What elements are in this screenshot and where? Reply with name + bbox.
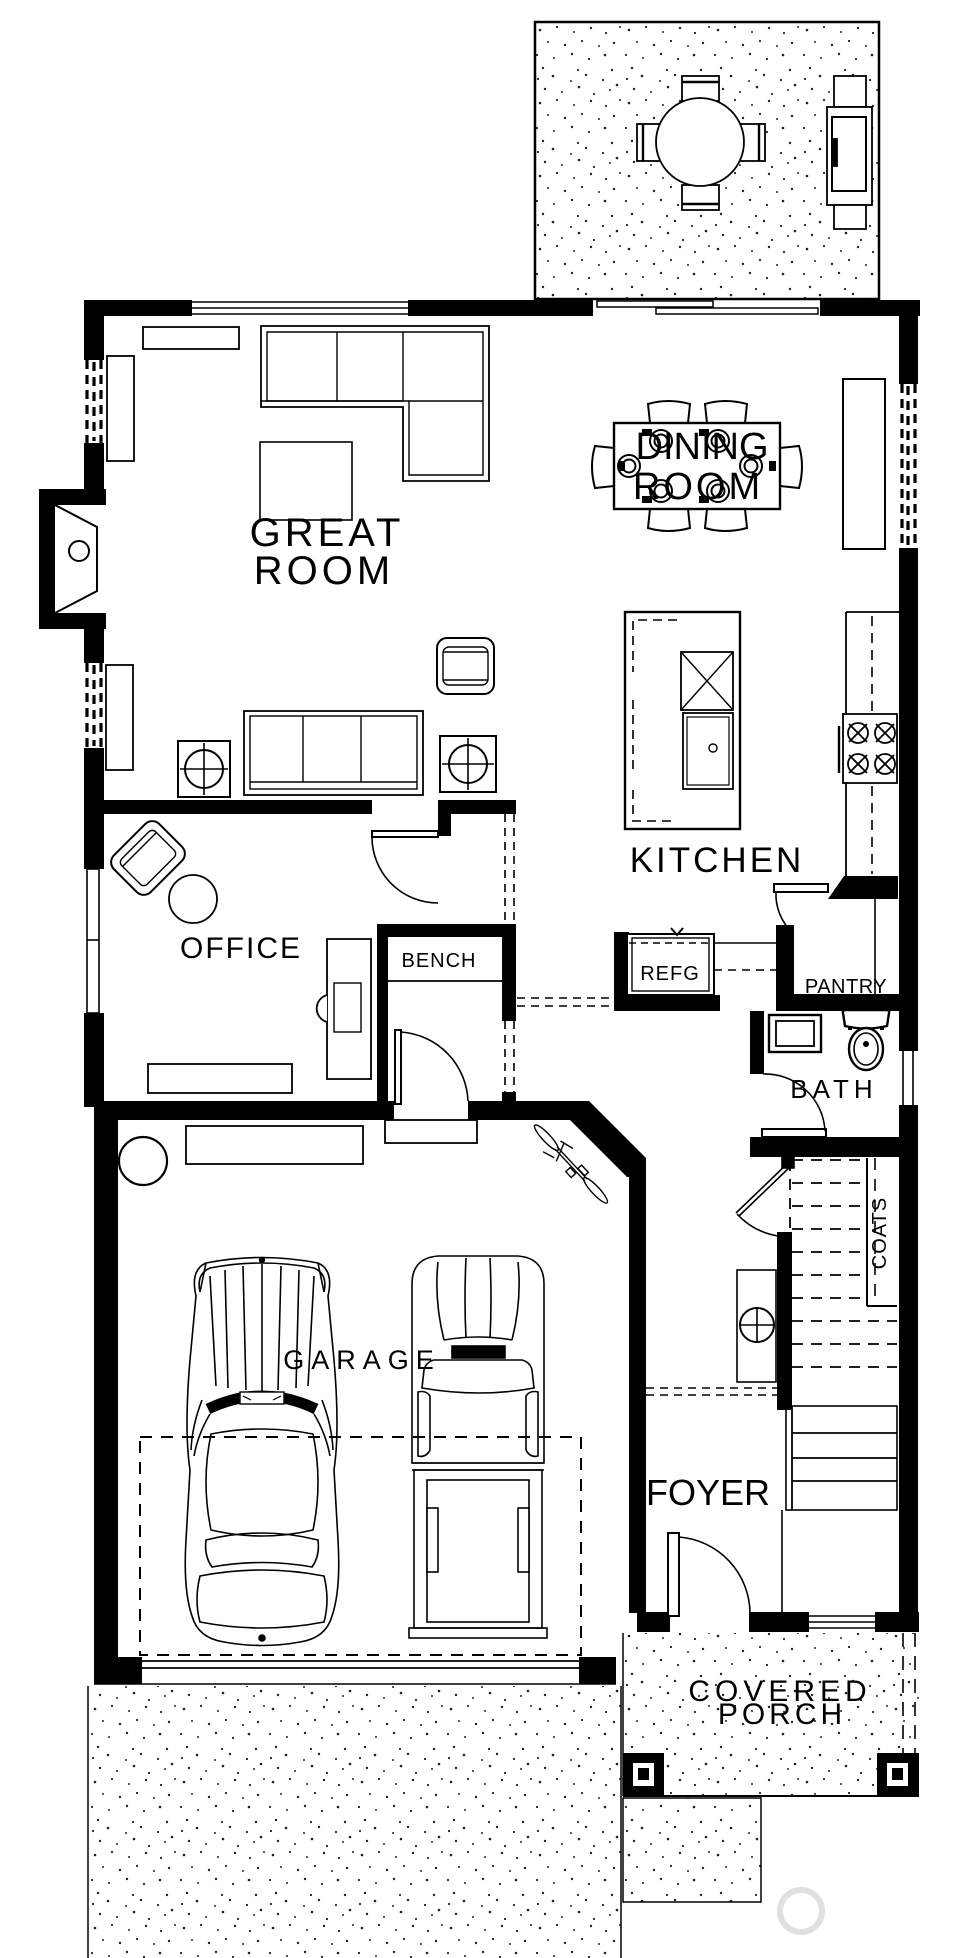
svg-text:PORCH: PORCH [718, 1698, 846, 1731]
svg-text:BATH: BATH [790, 1074, 877, 1104]
svg-text:KITCHEN: KITCHEN [630, 841, 805, 880]
svg-text:REFG: REFG [640, 963, 700, 985]
svg-text:GARAGE: GARAGE [283, 1345, 441, 1375]
svg-text:ROOM: ROOM [254, 549, 394, 593]
svg-text:ROOM: ROOM [633, 466, 763, 508]
svg-text:DINING: DINING [636, 426, 769, 468]
svg-text:FOYER: FOYER [646, 1472, 770, 1513]
svg-text:PANTRY: PANTRY [805, 976, 887, 998]
svg-text:COATS: COATS [869, 1197, 891, 1269]
svg-text:OFFICE: OFFICE [180, 932, 302, 965]
svg-text:BENCH: BENCH [401, 950, 476, 972]
